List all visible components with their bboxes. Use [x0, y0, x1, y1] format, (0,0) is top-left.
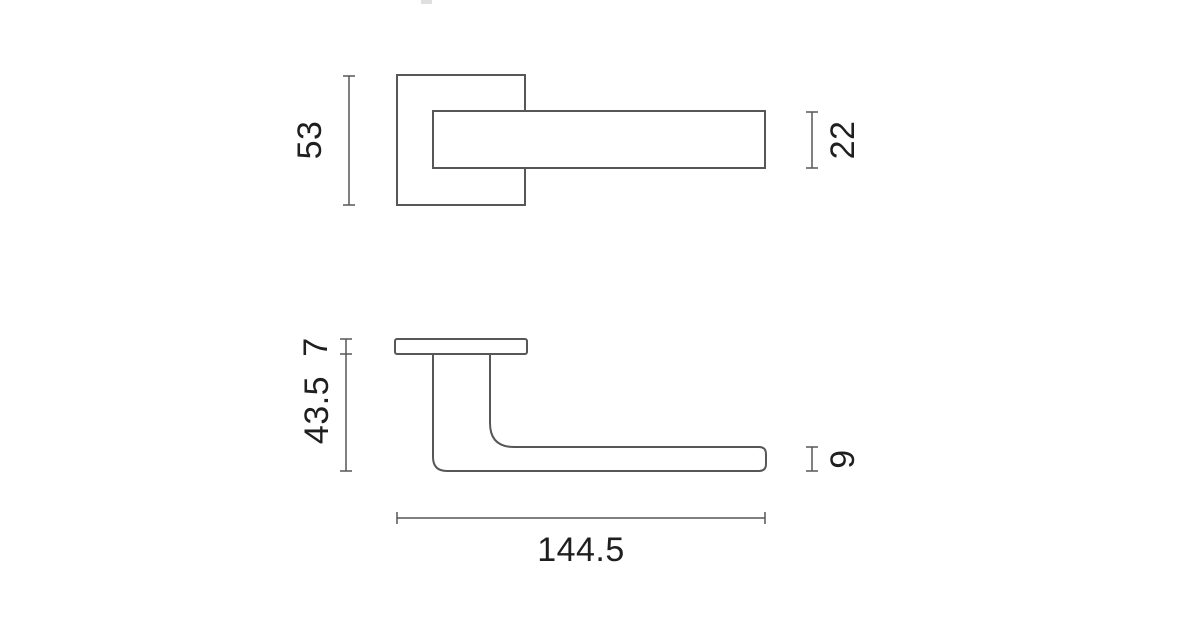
- dimension-plate-and-projection: [340, 339, 352, 471]
- side-view: [395, 339, 766, 471]
- dimension-overall-length: [397, 512, 765, 524]
- front-lever-bar: [433, 111, 765, 168]
- side-rosette-plate: [395, 339, 527, 354]
- side-handle-profile: [433, 354, 766, 471]
- dimension-lever-thickness: [806, 112, 818, 168]
- cropped-artifact-mark: [421, 0, 432, 4]
- dimension-label-handle-projection: 43.5: [298, 376, 336, 444]
- drawing-canvas: 53 22 7 43.5 9: [0, 0, 1200, 630]
- door-handle-technical-drawing: 53 22 7 43.5 9: [0, 0, 1200, 630]
- dimension-label-overall-length: 144.5: [537, 531, 625, 569]
- dimension-label-lever-depth: 9: [824, 449, 862, 468]
- dimension-rosette-height: [343, 76, 355, 205]
- dimension-label-lever-thickness: 22: [824, 121, 862, 160]
- dimension-lever-depth: [806, 447, 818, 471]
- front-view: [397, 75, 765, 205]
- dimension-label-rosette-thickness: 7: [297, 337, 335, 356]
- dimension-label-rosette-height: 53: [291, 121, 329, 160]
